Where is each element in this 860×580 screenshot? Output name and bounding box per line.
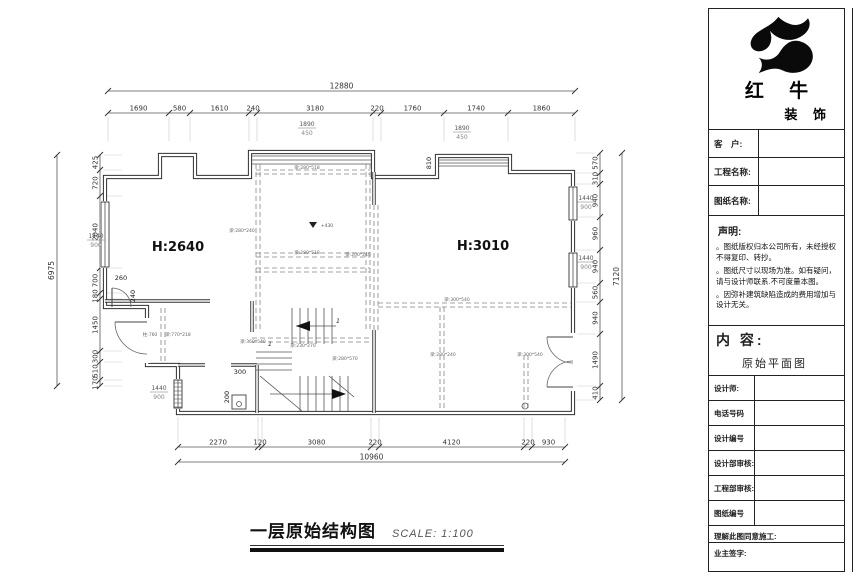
svg-text:120: 120 — [253, 439, 266, 447]
svg-text:450: 450 — [456, 134, 468, 141]
caption-underline — [250, 545, 504, 546]
bull-logo — [734, 14, 820, 76]
beam-dashed-lines — [161, 164, 571, 411]
svg-text:200: 200 — [223, 391, 231, 403]
svg-text:1440: 1440 — [578, 195, 593, 202]
svg-text:1440: 1440 — [88, 233, 103, 240]
svg-text:1490: 1490 — [592, 351, 600, 369]
svg-text:1: 1 — [268, 340, 272, 348]
svg-text:1440: 1440 — [578, 255, 593, 262]
svg-text:220: 220 — [368, 439, 381, 447]
svg-text:960: 960 — [592, 227, 600, 240]
svg-text:10960: 10960 — [360, 453, 384, 462]
drawing-scale: SCALE: 1:100 — [392, 528, 474, 540]
plan-labels: H:2640H:3010梁:280*518梁:280*240梁:280*518梁… — [87, 121, 595, 403]
brand-name: 红 牛 — [735, 76, 818, 103]
svg-text:1890: 1890 — [299, 121, 314, 128]
brand-subname: 装 饰 — [784, 104, 844, 123]
svg-text:450: 450 — [301, 130, 313, 137]
svg-text:220: 220 — [521, 439, 534, 447]
svg-text:510: 510 — [92, 364, 100, 377]
form-row: 电话号码 — [709, 400, 844, 425]
svg-text:柱:760: 柱:760 — [143, 331, 158, 338]
svg-text:梁:230*270: 梁:230*270 — [290, 342, 316, 349]
declaration-item: 。图纸版权归本公司所有，未经授权不得复印、转抄。 — [716, 242, 837, 264]
windows — [100, 186, 578, 409]
svg-text:900: 900 — [580, 204, 592, 211]
svg-text:梁:280*570: 梁:280*570 — [332, 355, 358, 362]
form-row-label: 图纸编号 — [709, 501, 755, 525]
svg-text:梁:280*240: 梁:280*240 — [229, 227, 255, 234]
staircase — [232, 308, 528, 411]
svg-text:+430: +430 — [321, 223, 333, 229]
svg-text:700: 700 — [92, 274, 100, 287]
form-row: 设计师: — [709, 375, 844, 400]
svg-text:170: 170 — [92, 376, 100, 389]
svg-text:1690: 1690 — [130, 105, 148, 113]
svg-text:930: 930 — [542, 439, 555, 447]
svg-text:300: 300 — [92, 350, 100, 363]
svg-text:梁:360*540: 梁:360*540 — [240, 338, 266, 345]
svg-text:1890: 1890 — [454, 125, 469, 132]
declaration-items: 。图纸版权归本公司所有，未经授权不得复印、转抄。。图纸尺寸以现场为准。如有疑问，… — [716, 242, 837, 311]
caption-bar — [250, 548, 504, 552]
svg-text:6975: 6975 — [47, 261, 56, 280]
svg-text:240: 240 — [129, 290, 137, 302]
svg-text:1450: 1450 — [92, 316, 100, 334]
svg-text:580: 580 — [173, 105, 186, 113]
svg-text:900: 900 — [153, 394, 165, 401]
dimension-chains: 1690580161024031802201760174018602270120… — [47, 82, 625, 466]
svg-text:940: 940 — [592, 311, 600, 324]
svg-text:H:3010: H:3010 — [457, 239, 509, 254]
svg-text:梁:280*240: 梁:280*240 — [430, 351, 456, 358]
footer-row: 业主签字: — [709, 542, 844, 571]
form-row: 图纸编号 — [709, 500, 844, 525]
svg-text:900: 900 — [580, 264, 592, 271]
svg-text:570: 570 — [592, 156, 600, 169]
svg-text:300: 300 — [234, 368, 246, 376]
field-label: 图纸名称: — [709, 186, 759, 215]
svg-text:310: 310 — [592, 172, 600, 185]
svg-text:梁:770*218: 梁:770*218 — [165, 331, 191, 338]
svg-text:900: 900 — [90, 242, 102, 249]
declaration-heading: 声明: — [718, 223, 837, 238]
svg-text:1: 1 — [336, 317, 340, 325]
svg-text:720: 720 — [92, 176, 100, 189]
doors — [112, 288, 577, 391]
brand-cell: 红 牛 装 饰 — [709, 9, 844, 129]
form-row-label: 电话号码 — [709, 401, 755, 425]
svg-text:560: 560 — [592, 286, 600, 299]
sheet-edge-line — [852, 8, 853, 572]
content-heading: 内 容: — [716, 330, 837, 350]
svg-text:梁:280*518: 梁:280*518 — [294, 249, 320, 256]
svg-text:3180: 3180 — [306, 105, 324, 113]
form-row: 工程部审核: — [709, 475, 844, 500]
svg-text:410: 410 — [592, 386, 600, 399]
field-row-client: 客 户: — [709, 129, 844, 157]
svg-text:梁:300*540: 梁:300*540 — [517, 351, 543, 358]
svg-text:425: 425 — [92, 156, 100, 169]
form-row-label: 设计师: — [709, 376, 755, 400]
form-row-label: 设计部审核: — [709, 451, 755, 475]
svg-text:260: 260 — [115, 274, 127, 282]
svg-text:1610: 1610 — [211, 105, 229, 113]
floor-plan: 1690580161024031802201760174018602270120… — [0, 0, 705, 580]
svg-text:梁:280*518: 梁:280*518 — [294, 164, 320, 171]
svg-text:810: 810 — [425, 157, 433, 169]
svg-text:1740: 1740 — [467, 105, 485, 113]
svg-text:1440: 1440 — [151, 385, 166, 392]
form-row-label: 工程部审核: — [709, 476, 755, 500]
drawing-title: 一层原始结构图 — [250, 517, 376, 542]
svg-text:梁:300*540: 梁:300*540 — [444, 296, 470, 303]
form-row-label: 设计编号 — [709, 426, 755, 450]
form-row: 设计部审核: — [709, 450, 844, 475]
footer-row: 理解此图同意施工: — [709, 525, 844, 542]
field-label: 工程名称: — [709, 158, 759, 185]
svg-text:240: 240 — [246, 105, 259, 113]
declaration-block: 声明: 。图纸版权归本公司所有，未经授权不得复印、转抄。。图纸尺寸以现场为准。如… — [709, 215, 844, 325]
declaration-item: 。因弥补建筑缺陷造成的费用增加与设计无关。 — [716, 290, 837, 312]
drawing-caption: 一层原始结构图 SCALE: 1:100 — [250, 517, 510, 552]
svg-text:180: 180 — [92, 289, 100, 302]
svg-text:1760: 1760 — [404, 105, 422, 113]
svg-text:1860: 1860 — [533, 105, 551, 113]
content-block: 内 容: 原始平面图 — [709, 325, 844, 375]
field-row-drawing: 图纸名称: — [709, 185, 844, 215]
walls — [105, 152, 573, 413]
field-row-project: 工程名称: — [709, 157, 844, 185]
svg-text:7120: 7120 — [612, 267, 621, 286]
svg-text:220: 220 — [370, 105, 383, 113]
content-value: 原始平面图 — [742, 355, 837, 371]
svg-text:H:2640: H:2640 — [152, 240, 204, 255]
form-row: 设计编号 — [709, 425, 844, 450]
field-label: 客 户: — [709, 130, 759, 157]
svg-text:2270: 2270 — [209, 439, 227, 447]
svg-text:梁:200*240: 梁:200*240 — [345, 251, 371, 258]
declaration-item: 。图纸尺寸以现场为准。如有疑问，请与设计师联系.不可度量本图。 — [716, 266, 837, 288]
svg-text:4120: 4120 — [443, 439, 461, 447]
svg-text:3080: 3080 — [308, 439, 326, 447]
title-block: 红 牛 装 饰 客 户: 工程名称: 图纸名称: 声明: 。图纸版权归本公司所有… — [708, 8, 845, 572]
svg-text:12880: 12880 — [330, 82, 354, 91]
